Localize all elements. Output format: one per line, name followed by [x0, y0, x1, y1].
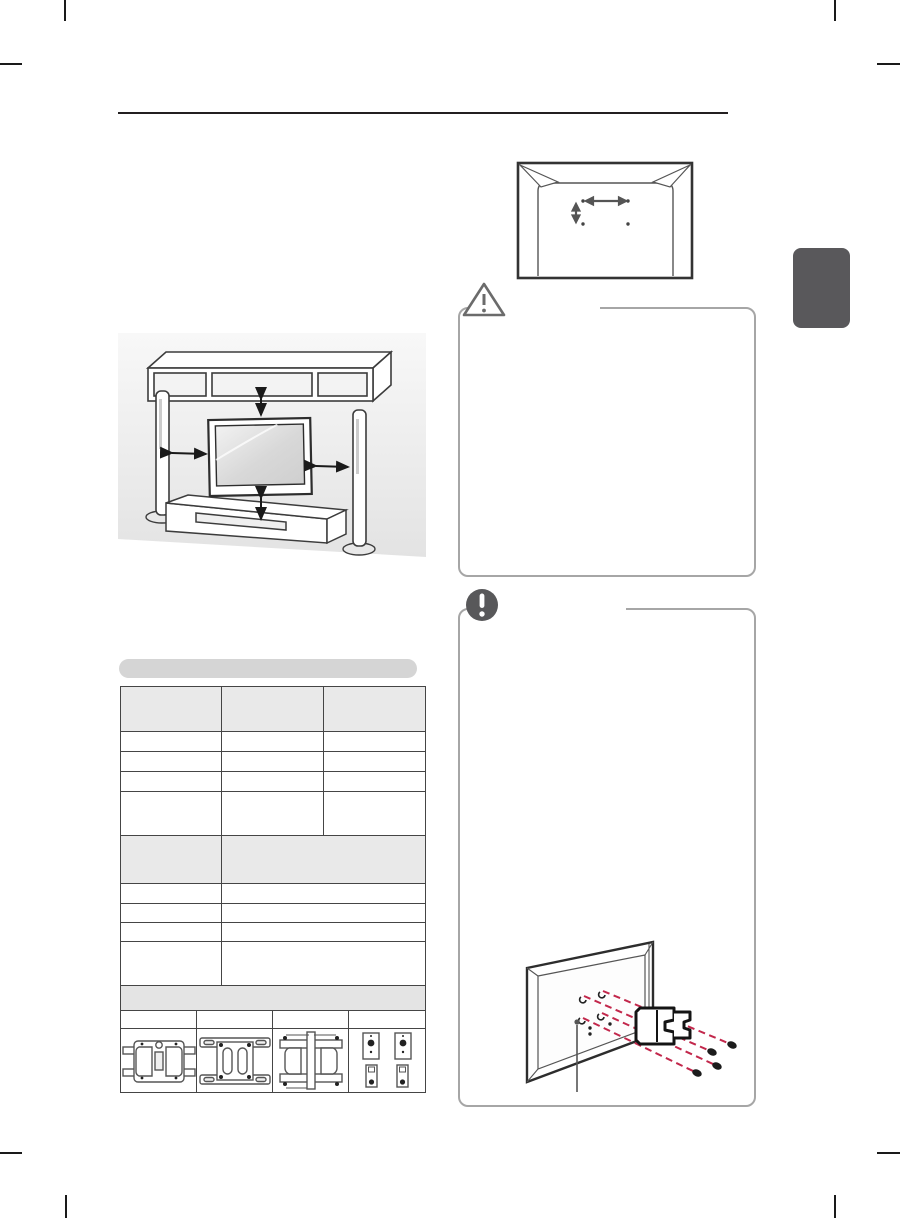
crop-mark-top-right-v [834, 0, 836, 21]
table-cell [121, 772, 222, 792]
table-cell [121, 942, 222, 986]
table-cell [121, 923, 222, 942]
wall-mount-attachment-diagram [500, 930, 754, 1102]
table-cell [222, 792, 324, 836]
wall-bracket-type-4-image [350, 1030, 424, 1092]
wall-shelf [148, 352, 391, 401]
crop-mark-top-right-h [877, 63, 900, 65]
bracket-image-cell [121, 1029, 197, 1093]
table-cell [222, 687, 324, 732]
table-cell [121, 752, 222, 772]
tv [208, 418, 312, 496]
manual-page: { "page": { "kind": "tv-owners-manual-pa… [0, 0, 900, 1218]
table-cell [324, 732, 426, 752]
spec-table-pill-header [119, 659, 417, 678]
table-cell [222, 942, 426, 986]
wall-bracket-type-2-image [198, 1030, 272, 1092]
table-cell [222, 904, 426, 923]
wall-mount-bracket [636, 1008, 690, 1044]
table-cell [222, 884, 426, 904]
bracket-label [349, 1011, 426, 1029]
bracket-image-cell [273, 1029, 349, 1093]
caution-box [458, 307, 756, 577]
table-cell [222, 752, 324, 772]
table-cell [121, 904, 222, 923]
wall-bracket-type-1-image [122, 1030, 196, 1092]
bracket-image-cell [349, 1029, 426, 1093]
crop-mark-top-left-h [0, 63, 22, 65]
wall-bracket-type-3-image [274, 1030, 348, 1092]
header-rule [118, 112, 728, 114]
crop-mark-bottom-right-v [834, 1195, 836, 1218]
language-side-tab [793, 248, 850, 328]
bracket-table-header [121, 986, 426, 1011]
table-cell [324, 752, 426, 772]
table-cell [222, 923, 426, 942]
table-cell [324, 687, 426, 732]
table-cell [121, 732, 222, 752]
wall-clearance-illustration [118, 333, 426, 568]
table-cell [121, 687, 222, 732]
table-cell [121, 792, 222, 836]
crop-mark-bottom-right-h [877, 1152, 900, 1154]
bracket-label [121, 1011, 197, 1029]
tv-rear-panel [527, 942, 653, 1082]
screws [691, 1040, 738, 1078]
bracket-label [273, 1011, 349, 1029]
bracket-label [197, 1011, 273, 1029]
table-cell [121, 836, 222, 884]
table-cell [222, 772, 324, 792]
spec-table [120, 686, 426, 986]
table-cell [121, 884, 222, 904]
crop-mark-bottom-left-h [0, 1152, 22, 1154]
bracket-image-cell [197, 1029, 273, 1093]
table-cell [222, 836, 426, 884]
warning-triangle-icon [461, 281, 507, 319]
note-body [460, 610, 754, 638]
wall-bracket-table [120, 985, 426, 1093]
exclamation-circle-icon [464, 587, 500, 623]
table-cell [222, 732, 324, 752]
crop-mark-top-left-v [64, 0, 66, 21]
table-cell [324, 772, 426, 792]
vesa-pattern-diagram [514, 160, 696, 282]
crop-mark-bottom-left-v [65, 1195, 67, 1218]
table-cell [324, 792, 426, 836]
